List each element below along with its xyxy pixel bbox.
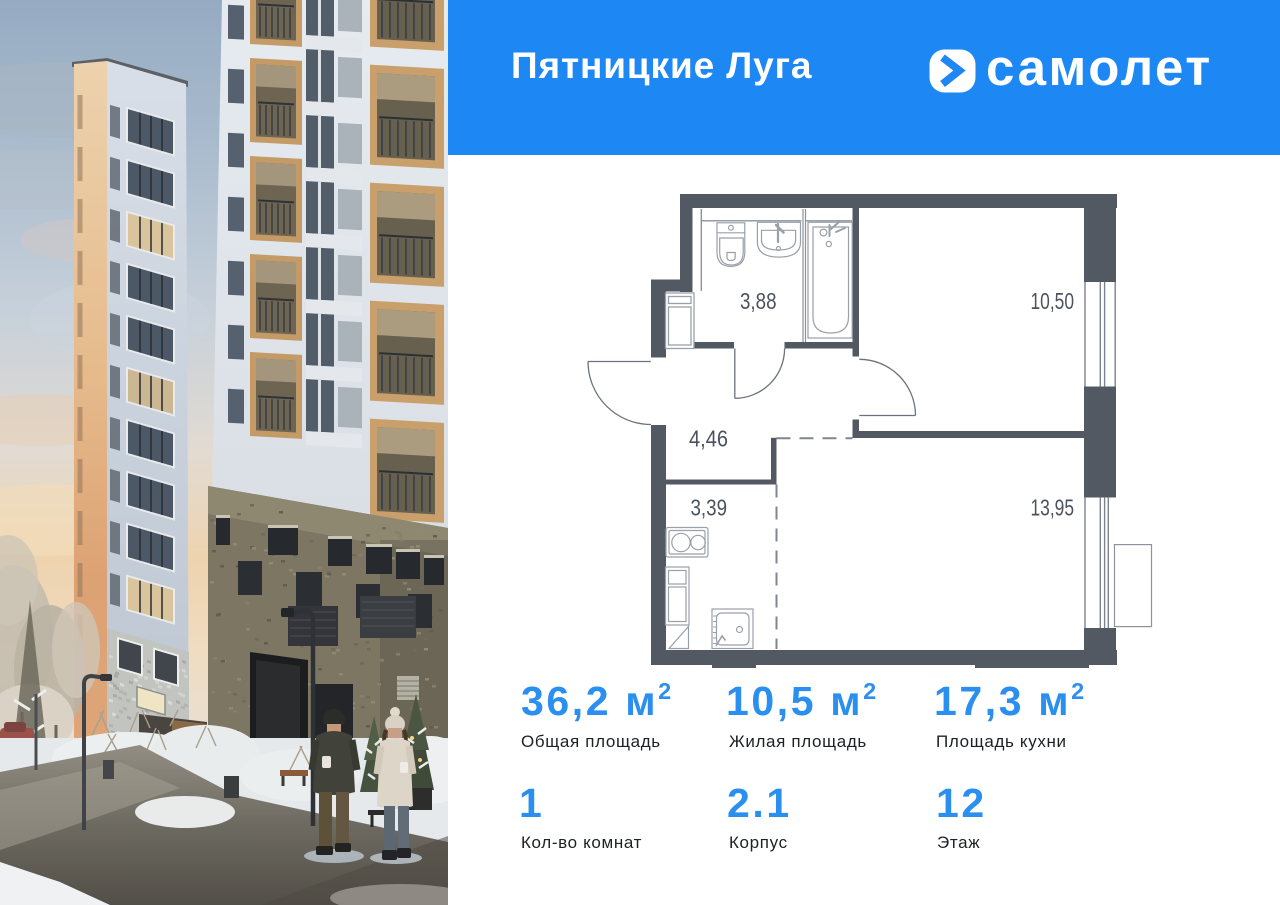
svg-text:3,39: 3,39: [691, 495, 728, 521]
svg-text:10,50: 10,50: [1031, 288, 1075, 314]
svg-text:13,95: 13,95: [1031, 495, 1075, 521]
svg-text:4,46: 4,46: [689, 426, 728, 452]
svg-text:3,88: 3,88: [740, 288, 777, 314]
